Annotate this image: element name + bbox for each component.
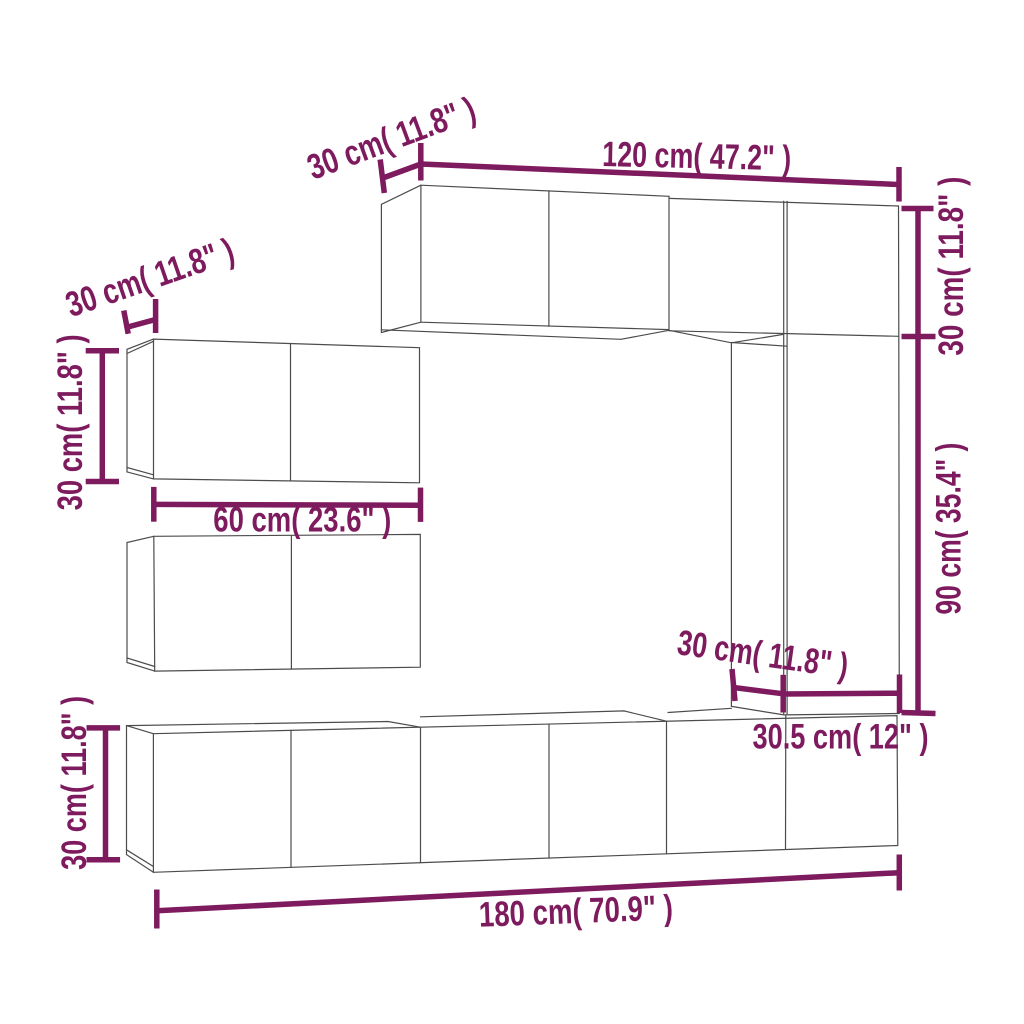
svg-text:90 cm( 35.4" ): 90 cm( 35.4" ) xyxy=(929,443,969,615)
svg-text:180 cm( 70.9" ): 180 cm( 70.9" ) xyxy=(478,887,673,934)
svg-text:120 cm( 47.2" ): 120 cm( 47.2" ) xyxy=(602,134,792,178)
svg-text:30 cm( 11.8" ): 30 cm( 11.8" ) xyxy=(931,177,971,356)
svg-text:30 cm( 11.8" ): 30 cm( 11.8" ) xyxy=(50,334,90,510)
svg-text:30.5 cm( 12" ): 30.5 cm( 12" ) xyxy=(753,716,929,756)
svg-text:60 cm( 23.6" ): 60 cm( 23.6" ) xyxy=(213,500,391,540)
svg-text:30 cm( 11.8" ): 30 cm( 11.8" ) xyxy=(54,696,94,870)
